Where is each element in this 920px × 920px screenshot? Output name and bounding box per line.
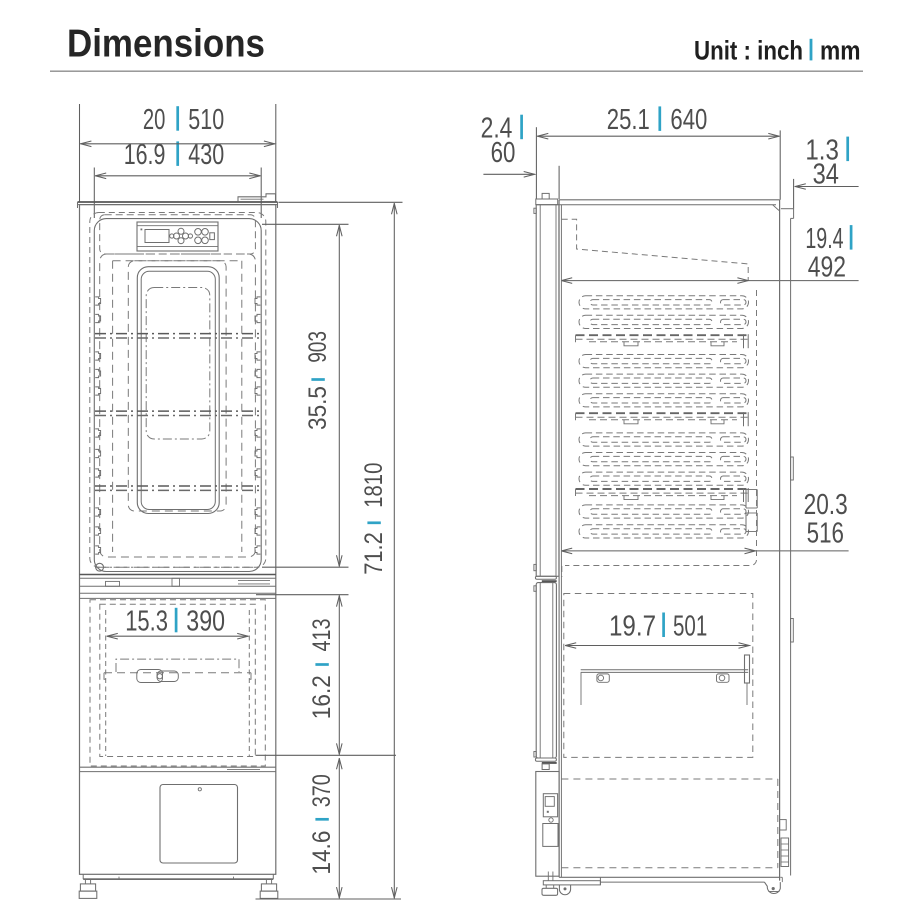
svg-text:501: 501 xyxy=(673,610,707,642)
svg-text:492: 492 xyxy=(808,252,846,284)
svg-text:516: 516 xyxy=(807,517,844,549)
svg-text:19.7: 19.7 xyxy=(609,610,656,642)
svg-text:20.3: 20.3 xyxy=(804,489,848,521)
svg-text:mm: mm xyxy=(820,35,861,65)
svg-text:390: 390 xyxy=(186,606,225,638)
svg-text:71.2: 71.2 xyxy=(360,532,388,575)
svg-text:640: 640 xyxy=(670,104,707,136)
svg-text:19.4: 19.4 xyxy=(805,223,843,255)
svg-text:14.6: 14.6 xyxy=(308,831,336,875)
svg-text:510: 510 xyxy=(188,104,224,136)
svg-text:15.3: 15.3 xyxy=(125,606,168,638)
svg-text:413: 413 xyxy=(308,619,336,652)
svg-text:60: 60 xyxy=(491,137,516,169)
svg-text:20: 20 xyxy=(143,104,166,136)
svg-text:16.2: 16.2 xyxy=(308,675,336,719)
svg-text:1810: 1810 xyxy=(360,463,388,508)
svg-text:34: 34 xyxy=(813,158,839,190)
svg-text:370: 370 xyxy=(308,774,336,807)
svg-text:Unit : inch: Unit : inch xyxy=(694,35,803,65)
svg-text:35.5: 35.5 xyxy=(304,386,332,430)
svg-text:903: 903 xyxy=(304,331,332,363)
svg-text:25.1: 25.1 xyxy=(607,104,650,136)
svg-text:Dimensions: Dimensions xyxy=(67,23,265,66)
